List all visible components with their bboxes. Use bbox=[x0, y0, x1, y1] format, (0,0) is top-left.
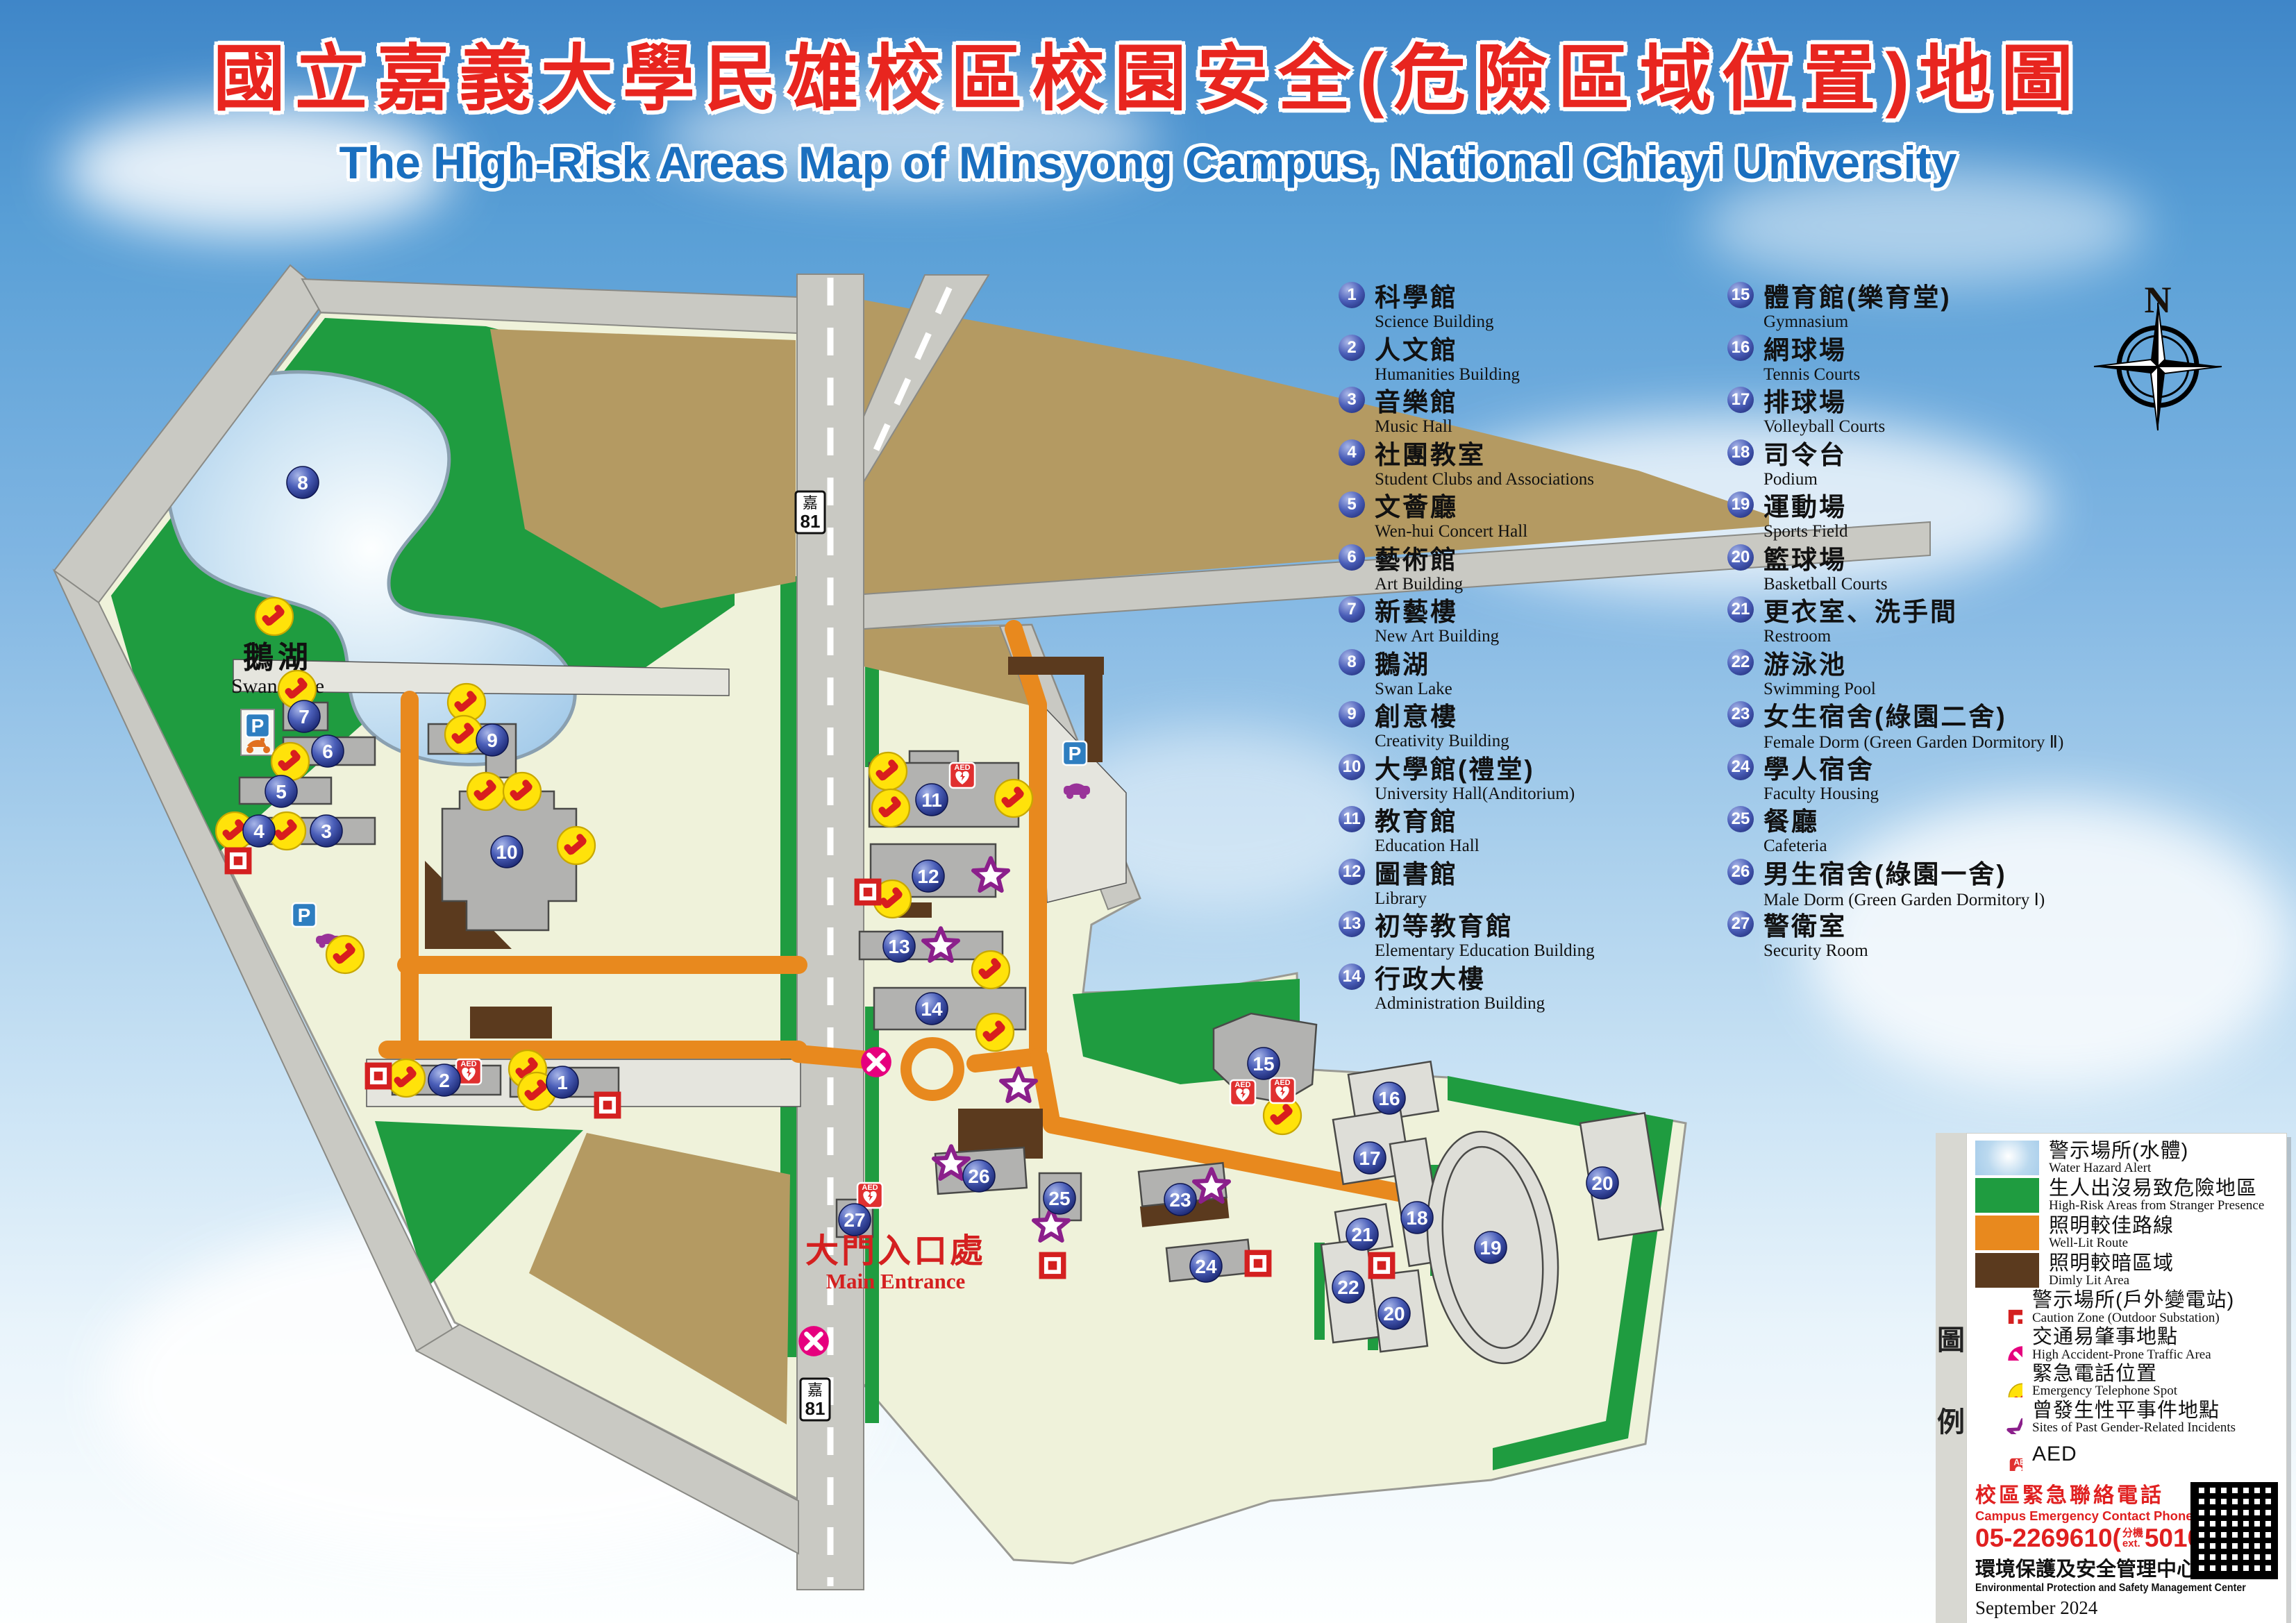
building-list-item: 20 籃球場 Basketball Courts bbox=[1727, 539, 2269, 591]
road-sign-jia81: 嘉 81 bbox=[796, 491, 825, 533]
emergency-phone-icon bbox=[872, 789, 910, 827]
legend-swatch-water bbox=[1975, 1141, 2039, 1175]
legend-label-zh: 緊急電話位置 bbox=[2032, 1364, 2177, 1385]
svg-text:23: 23 bbox=[1169, 1189, 1191, 1211]
map-building-badge-2: 2 bbox=[428, 1064, 460, 1096]
map-building-badge-6: 6 bbox=[312, 735, 344, 767]
svg-text:16: 16 bbox=[1378, 1088, 1400, 1109]
legend-icon-phone bbox=[1989, 1364, 2022, 1397]
legend-row: 交通易肇事地點 High Accident-Prone Traffic Area bbox=[1975, 1327, 2278, 1361]
building-number-badge: 22 bbox=[1727, 649, 1754, 675]
building-list-item: 12 圖書館 Library bbox=[1339, 853, 1769, 906]
legend-row: 照明較佳路線 Well-Lit Route bbox=[1975, 1216, 2278, 1250]
building-name-zh: 文薈廳 bbox=[1375, 486, 1458, 523]
map-building-badge-8: 8 bbox=[287, 466, 319, 498]
contact-center-zh: 環境保護及安全管理中心 bbox=[1975, 1553, 2184, 1582]
building-name-zh: 社團教室 bbox=[1375, 434, 1486, 471]
parking-sign-icon bbox=[1063, 741, 1087, 765]
building-name-zh: 創意樓 bbox=[1375, 696, 1458, 733]
map-building-badge-13: 13 bbox=[883, 930, 915, 962]
building-name-zh: 籃球場 bbox=[1763, 539, 1847, 576]
building-list-item: 24 學人宿舍 Faculty Housing bbox=[1727, 748, 2269, 801]
svg-text:8: 8 bbox=[297, 472, 308, 494]
legend-label-en: Emergency Telephone Spot bbox=[2032, 1384, 2177, 1397]
svg-text:12: 12 bbox=[917, 866, 939, 887]
building-list-item: 27 警衛室 Security Room bbox=[1727, 905, 2269, 958]
svg-text:17: 17 bbox=[1359, 1147, 1380, 1169]
legend-label-zh: 警示場所(戶外變電站) bbox=[2032, 1290, 2234, 1311]
svg-text:6: 6 bbox=[322, 741, 333, 762]
map-building-badge-11: 11 bbox=[916, 784, 948, 816]
svg-text:20: 20 bbox=[1591, 1172, 1613, 1194]
legend-label-zh: 交通易肇事地點 bbox=[2032, 1327, 2211, 1348]
map-building-badge-12: 12 bbox=[912, 860, 944, 892]
substation-caution-icon bbox=[1041, 1254, 1064, 1277]
legend-tab-char: 例 bbox=[1937, 1399, 1965, 1440]
building-number-badge: 4 bbox=[1339, 439, 1365, 466]
building-list-item: 5 文薈廳 Wen-hui Concert Hall bbox=[1339, 486, 1769, 539]
legend: 圖 例 警示場所(水體) Water Hazard Alert 生人出沒易致危險… bbox=[1936, 1133, 2287, 1623]
legend-tab: 圖 例 bbox=[1936, 1133, 1966, 1623]
building-number-badge: 1 bbox=[1339, 282, 1365, 308]
building-number-badge: 26 bbox=[1727, 859, 1754, 885]
legend-label-en: Dimly Lit Area bbox=[2049, 1274, 2174, 1287]
legend-label-zh: 照明較佳路線 bbox=[2049, 1216, 2174, 1237]
emergency-phone-icon bbox=[271, 743, 309, 780]
map-building-badge-4: 4 bbox=[243, 815, 275, 847]
emergency-phone-icon bbox=[995, 780, 1032, 817]
map-building-badge-5: 5 bbox=[265, 775, 297, 807]
building-list-item: 23 女生宿舍(綠園二舍) Female Dorm (Green Garden … bbox=[1727, 696, 2269, 748]
accident-prone-x-icon bbox=[861, 1047, 891, 1077]
building-name-zh: 男生宿舍(綠園一舍) bbox=[1763, 853, 2007, 891]
svg-text:20: 20 bbox=[1383, 1303, 1405, 1325]
building-number-badge: 8 bbox=[1339, 649, 1365, 675]
contact-title-zh: 校區緊急聯絡電話 bbox=[1975, 1478, 2184, 1508]
legend-row: 警示場所(水體) Water Hazard Alert bbox=[1975, 1141, 2278, 1175]
legend-row: 緊急電話位置 Emergency Telephone Spot bbox=[1975, 1364, 2278, 1398]
emergency-phone-icon bbox=[869, 752, 907, 790]
svg-text:27: 27 bbox=[844, 1209, 865, 1231]
building-list-item: 16 網球場 Tennis Courts bbox=[1727, 329, 2269, 382]
legend-label-zh: 警示場所(水體) bbox=[2049, 1141, 2188, 1162]
building-name-zh: 鵝湖 bbox=[1375, 644, 1430, 681]
legend-row: 警示場所(戶外變電站) Caution Zone (Outdoor Substa… bbox=[1975, 1290, 2278, 1325]
building-list-item: 11 教育館 Education Hall bbox=[1339, 800, 1769, 853]
substation-caution-icon bbox=[596, 1094, 619, 1116]
legend-label-en: Sites of Past Gender-Related Incidents bbox=[2032, 1421, 2236, 1434]
building-name-zh: 女生宿舍(綠園二舍) bbox=[1763, 696, 2007, 733]
svg-text:5: 5 bbox=[276, 781, 287, 802]
building-list-item: 13 初等教育館 Elementary Education Building bbox=[1339, 905, 1769, 958]
building-list-item: 6 藝術館 Art Building bbox=[1339, 539, 1769, 591]
building-name-en: Security Room bbox=[1763, 941, 2269, 961]
map-building-badge-21: 21 bbox=[1346, 1218, 1378, 1250]
legend-row: 曾發生性平事件地點 Sites of Past Gender-Related I… bbox=[1975, 1401, 2278, 1435]
substation-caution-icon bbox=[367, 1065, 389, 1087]
building-list-item: 17 排球場 Volleyball Courts bbox=[1727, 381, 2269, 434]
emergency-phone-icon bbox=[976, 1014, 1014, 1051]
aed-icon bbox=[1230, 1080, 1255, 1105]
substation-caution-icon bbox=[857, 881, 879, 903]
building-name-zh: 科學館 bbox=[1375, 276, 1458, 314]
main-entrance-label-zh: 大門入口處 bbox=[805, 1233, 986, 1270]
map-building-badge-26: 26 bbox=[963, 1160, 995, 1192]
map-building-badge-23: 23 bbox=[1164, 1184, 1196, 1216]
building-list-item: 26 男生宿舍(綠園一舍) Male Dorm (Green Garden Do… bbox=[1727, 853, 2269, 906]
svg-text:1: 1 bbox=[557, 1072, 568, 1093]
legend-label-zh: AED bbox=[2032, 1444, 2077, 1465]
swan-lake-label-zh: 鵝湖 bbox=[243, 641, 312, 675]
map-building-badge-19: 19 bbox=[1475, 1231, 1507, 1263]
map-building-badge-22: 22 bbox=[1332, 1271, 1364, 1303]
legend-label-en: High-Risk Areas from Stranger Presence bbox=[2049, 1199, 2264, 1212]
legend-label-zh: 生人出沒易致危險地區 bbox=[2049, 1179, 2264, 1200]
road-sign-jia81: 嘉 81 bbox=[801, 1379, 830, 1420]
building-name-zh: 更衣室、洗手間 bbox=[1763, 591, 1958, 628]
emergency-phone-icon bbox=[387, 1059, 425, 1097]
svg-text:嘉: 嘉 bbox=[807, 1381, 823, 1399]
building-number-badge: 16 bbox=[1727, 335, 1754, 361]
map-building-badge-16: 16 bbox=[1373, 1082, 1405, 1114]
building-name-zh: 警衛室 bbox=[1763, 905, 1847, 943]
svg-text:14: 14 bbox=[921, 998, 943, 1020]
building-number-badge: 19 bbox=[1727, 491, 1754, 518]
map-building-badge-10: 10 bbox=[491, 836, 523, 868]
map-building-badge-20: 20 bbox=[1378, 1297, 1410, 1329]
svg-text:10: 10 bbox=[496, 841, 517, 863]
building-list-item: 1 科學館 Science Building bbox=[1339, 276, 1769, 329]
building-name-zh: 大學館(禮堂) bbox=[1375, 748, 1535, 786]
building-name-zh: 初等教育館 bbox=[1375, 905, 1514, 943]
svg-text:11: 11 bbox=[921, 789, 942, 811]
building-name-zh: 新藝樓 bbox=[1375, 591, 1458, 628]
building-list-item: 18 司令台 Podium bbox=[1727, 434, 2269, 487]
building-number-badge: 7 bbox=[1339, 596, 1365, 623]
map-building-badge-14: 14 bbox=[916, 993, 948, 1025]
map-date: September 2024 bbox=[1975, 1597, 2184, 1619]
building-list-item: 3 音樂館 Music Hall bbox=[1339, 381, 1769, 434]
ext-zh: 分機 bbox=[2122, 1528, 2143, 1538]
main-entrance-label-en: Main Entrance bbox=[826, 1269, 966, 1293]
building-number-badge: 13 bbox=[1339, 911, 1365, 937]
building-number-badge: 15 bbox=[1727, 282, 1754, 308]
contact-phone: 05-2269610(分機ext.5010) bbox=[1975, 1524, 2184, 1553]
map-building-badge-20: 20 bbox=[1586, 1167, 1618, 1199]
building-list-item: 22 游泳池 Swimming Pool bbox=[1727, 644, 2269, 696]
building-list-item: 8 鵝湖 Swan Lake bbox=[1339, 644, 1769, 696]
building-list-col1: 1 科學館 Science Building 2 人文館 Humanities … bbox=[1339, 276, 1769, 1010]
building-name-zh: 游泳池 bbox=[1763, 644, 1847, 681]
building-name-zh: 網球場 bbox=[1763, 329, 1847, 367]
poster-title-zh: 國立嘉義大學民雄校區校園安全(危險區域位置)地圖 bbox=[0, 19, 2296, 124]
aed-icon bbox=[950, 763, 975, 788]
svg-text:4: 4 bbox=[253, 821, 265, 842]
qr-code bbox=[2190, 1482, 2278, 1579]
legend-row: 照明較暗區域 Dimly Lit Area bbox=[1975, 1253, 2278, 1288]
contact-title-en: Campus Emergency Contact Phone Number bbox=[1975, 1508, 2184, 1524]
building-number-badge: 25 bbox=[1727, 806, 1754, 832]
svg-text:嘉: 嘉 bbox=[803, 494, 818, 512]
legend-panel: 警示場所(水體) Water Hazard Alert 生人出沒易致危險地區 H… bbox=[1966, 1133, 2287, 1623]
building-number-badge: 10 bbox=[1339, 754, 1365, 780]
emergency-contact-block: 校區緊急聯絡電話 Campus Emergency Contact Phone … bbox=[1975, 1478, 2278, 1619]
building-number-badge: 5 bbox=[1339, 491, 1365, 518]
building-name-zh: 教育館 bbox=[1375, 800, 1458, 838]
building-list-col2: 15 體育館(樂育堂) Gymnasium 16 網球場 Tennis Cour… bbox=[1727, 276, 2269, 958]
svg-text:9: 9 bbox=[487, 730, 498, 751]
legend-row: 生人出沒易致危險地區 High-Risk Areas from Stranger… bbox=[1975, 1178, 2278, 1213]
building-name-zh: 體育館(樂育堂) bbox=[1763, 276, 1952, 314]
svg-text:25: 25 bbox=[1048, 1188, 1070, 1209]
parking-sign-icon bbox=[292, 903, 316, 927]
map-building-badge-25: 25 bbox=[1044, 1182, 1075, 1214]
map-building-badge-3: 3 bbox=[310, 815, 342, 847]
building-name-zh: 藝術館 bbox=[1375, 539, 1458, 576]
building-list-item: 21 更衣室、洗手間 Restroom bbox=[1727, 591, 2269, 644]
map-building-badge-18: 18 bbox=[1401, 1202, 1433, 1234]
building-list-item: 25 餐廳 Cafeteria bbox=[1727, 800, 2269, 853]
map-building-badge-1: 1 bbox=[546, 1066, 578, 1098]
building-number-badge: 21 bbox=[1727, 596, 1754, 623]
poster-root: AED P bbox=[0, 0, 2296, 1623]
building-number-badge: 3 bbox=[1339, 387, 1365, 413]
svg-text:3: 3 bbox=[321, 821, 332, 842]
emergency-phone-icon bbox=[558, 827, 595, 864]
building-list-item: 15 體育館(樂育堂) Gymnasium bbox=[1727, 276, 2269, 329]
legend-tab-char: 圖 bbox=[1937, 1318, 1965, 1358]
building-number-badge: 18 bbox=[1727, 439, 1754, 466]
emergency-phone-icon bbox=[467, 773, 505, 810]
legend-label-en: Well-Lit Route bbox=[2049, 1236, 2174, 1250]
building-number-badge: 9 bbox=[1339, 701, 1365, 728]
svg-text:15: 15 bbox=[1252, 1053, 1274, 1075]
legend-swatch-brown bbox=[1975, 1253, 2039, 1288]
map-building-badge-7: 7 bbox=[288, 700, 320, 732]
legend-label-zh: 照明較暗區域 bbox=[2049, 1254, 2174, 1275]
building-list-item: 10 大學館(禮堂) University Hall(Anditorium) bbox=[1339, 748, 1769, 801]
substation-caution-icon bbox=[227, 850, 249, 872]
svg-text:24: 24 bbox=[1195, 1256, 1217, 1277]
svg-text:81: 81 bbox=[801, 511, 821, 532]
map-building-badge-27: 27 bbox=[839, 1204, 871, 1236]
substation-caution-icon bbox=[1247, 1252, 1269, 1275]
svg-text:81: 81 bbox=[805, 1398, 826, 1419]
map-building-badge-17: 17 bbox=[1354, 1142, 1386, 1174]
legend-label-en: Water Hazard Alert bbox=[2049, 1161, 2188, 1175]
emergency-phone-icon bbox=[503, 773, 541, 810]
svg-text:21: 21 bbox=[1351, 1224, 1373, 1245]
svg-text:2: 2 bbox=[439, 1070, 450, 1091]
building-name-zh: 音樂館 bbox=[1375, 381, 1458, 419]
emergency-phone-icon bbox=[255, 598, 293, 635]
building-list-item: 4 社團教室 Student Clubs and Associations bbox=[1339, 434, 1769, 487]
building-name-zh: 行政大樓 bbox=[1375, 958, 1486, 995]
emergency-phone-icon bbox=[326, 936, 364, 973]
substation-caution-icon bbox=[1371, 1254, 1393, 1277]
legend-label-zh: 曾發生性平事件地點 bbox=[2032, 1401, 2236, 1422]
building-name-zh: 司令台 bbox=[1763, 434, 1847, 471]
svg-text:7: 7 bbox=[299, 706, 310, 728]
accident-prone-x-icon bbox=[798, 1326, 829, 1356]
building-number-badge: 20 bbox=[1727, 544, 1754, 571]
svg-text:26: 26 bbox=[968, 1166, 989, 1187]
map-building-badge-9: 9 bbox=[476, 724, 508, 756]
building-list-item: 14 行政大樓 Administration Building bbox=[1339, 958, 1769, 1011]
svg-text:19: 19 bbox=[1480, 1237, 1501, 1259]
building-number-badge: 27 bbox=[1727, 911, 1754, 937]
legend-icon-star bbox=[1989, 1401, 2022, 1434]
phone-number: 05-2269610( bbox=[1975, 1524, 2121, 1553]
parking-sign-icon bbox=[246, 714, 269, 737]
legend-swatch-green bbox=[1975, 1178, 2039, 1213]
legend-label-en: High Accident-Prone Traffic Area bbox=[2032, 1348, 2211, 1361]
building-number-badge: 24 bbox=[1727, 754, 1754, 780]
building-name-zh: 學人宿舍 bbox=[1763, 748, 1875, 786]
legend-label-en: Caution Zone (Outdoor Substation) bbox=[2032, 1311, 2234, 1325]
building-name-zh: 餐廳 bbox=[1763, 800, 1819, 838]
building-name-en: Administration Building bbox=[1375, 994, 1769, 1014]
svg-text:13: 13 bbox=[888, 936, 910, 957]
building-number-badge: 11 bbox=[1339, 806, 1365, 832]
map-building-badge-24: 24 bbox=[1190, 1250, 1222, 1282]
emergency-phone-icon bbox=[972, 951, 1009, 989]
building-number-badge: 17 bbox=[1727, 387, 1754, 413]
building-list-item: 9 創意樓 Creativity Building bbox=[1339, 696, 1769, 748]
contact-center-en: Environmental Protection and Safety Mana… bbox=[1975, 1582, 2167, 1595]
building-number-badge: 6 bbox=[1339, 544, 1365, 571]
legend-swatch-orange bbox=[1975, 1216, 2039, 1250]
aed-icon bbox=[1270, 1078, 1295, 1103]
building-number-badge: 12 bbox=[1339, 859, 1365, 885]
legend-icon-aed bbox=[1989, 1438, 2022, 1471]
ext-en: ext. bbox=[2122, 1538, 2143, 1549]
building-list-item: 7 新藝樓 New Art Building bbox=[1339, 591, 1769, 644]
legend-icon-x bbox=[1989, 1327, 2022, 1361]
building-list-item: 19 運動場 Sports Field bbox=[1727, 486, 2269, 539]
svg-text:22: 22 bbox=[1337, 1277, 1359, 1298]
poster-title-en: The High-Risk Areas Map of Minsyong Camp… bbox=[0, 136, 2296, 189]
aed-icon bbox=[857, 1183, 882, 1208]
map-building-badge-15: 15 bbox=[1248, 1048, 1280, 1079]
building-name-zh: 運動場 bbox=[1763, 486, 1847, 523]
building-number-badge: 23 bbox=[1727, 701, 1754, 728]
building-name-zh: 人文館 bbox=[1375, 329, 1458, 367]
building-name-zh: 排球場 bbox=[1763, 381, 1847, 419]
building-list-item: 2 人文館 Humanities Building bbox=[1339, 329, 1769, 382]
legend-icon-square bbox=[1989, 1290, 2022, 1324]
building-number-badge: 2 bbox=[1339, 335, 1365, 361]
building-number-badge: 14 bbox=[1339, 964, 1365, 990]
legend-row: AED bbox=[1975, 1438, 2278, 1471]
svg-text:18: 18 bbox=[1406, 1207, 1427, 1229]
building-name-zh: 圖書館 bbox=[1375, 853, 1458, 891]
